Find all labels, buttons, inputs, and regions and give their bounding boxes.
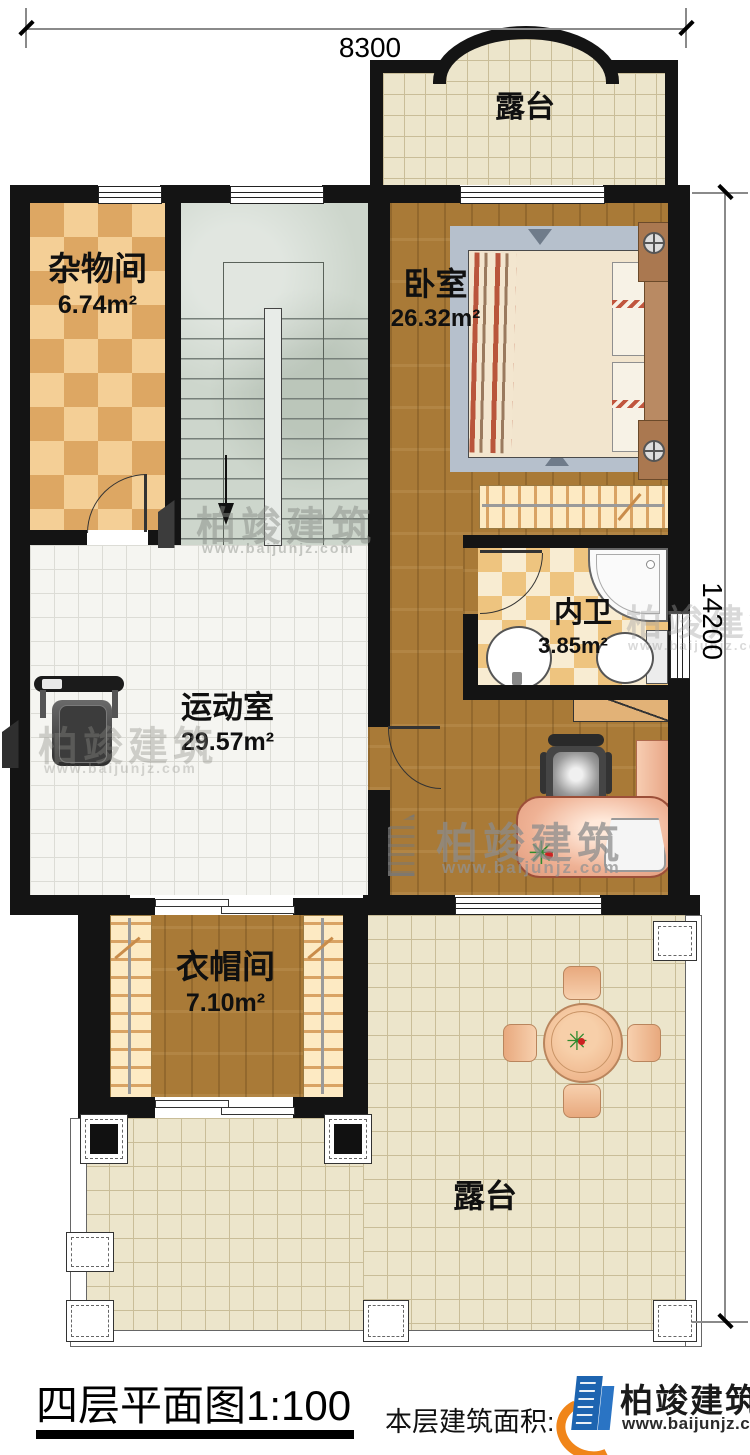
floor-area-note: 本层建筑面积:( [385, 1400, 564, 1439]
cloakroom-sliding-door-top-b [221, 906, 295, 914]
bedroom-terrace-window [460, 186, 605, 204]
top-wall-seg2 [160, 185, 230, 203]
cloakroom-sliding-door-bottom-a [155, 1100, 229, 1108]
column-dash [658, 926, 692, 956]
column-open-topright [653, 921, 697, 961]
column-open-bottomleft [66, 1300, 114, 1342]
storage-door-leaf [144, 474, 147, 532]
cloakroom-right-wall [343, 915, 368, 1118]
hall-door-gap-floor [463, 548, 478, 614]
column-dash [368, 1305, 404, 1337]
gym-right-wall-upper [368, 545, 390, 727]
treadmill-display [42, 679, 62, 689]
top-wall-seg1 [10, 185, 98, 203]
study-bottom-wall-right [600, 895, 700, 915]
gym-door-leaf [388, 726, 440, 729]
side-cabinet [636, 740, 670, 804]
wardrobe-rail [482, 504, 664, 507]
storage-area: 6.74m² [30, 292, 165, 319]
watermark-gym: 柏竣建筑 www.baijunjz.com [2, 714, 262, 784]
column-open-bottommid [363, 1300, 409, 1342]
dim-top-value: 8300 [320, 32, 420, 64]
bed-pillow-trim-top [612, 300, 644, 308]
office-chair-back [548, 734, 604, 746]
terrace-top-wall-topright [606, 60, 678, 73]
watermark-building-icon [2, 720, 32, 768]
watermark-url: www.baijunjz.com [202, 540, 355, 556]
study-bottom-wall-left [363, 895, 455, 915]
column-dash [71, 1305, 109, 1337]
watermark-stairs: 柏竣建筑 www.baijunjz.com [158, 492, 398, 562]
bed-ornament-icon-top [643, 232, 665, 254]
column-solid-right [324, 1114, 372, 1164]
cloakroom-label: 衣帽间 [163, 950, 288, 985]
cloakroom-left-wall [78, 905, 110, 1118]
dim-right-line [724, 192, 726, 1322]
column-dash [71, 1237, 109, 1267]
shower-drain-icon [646, 560, 655, 569]
cloakroom-sliding-door-top-a [155, 899, 229, 907]
watermark-bathroom: 柏竣建筑 www.baijunjz.com [626, 594, 750, 664]
dim-right-ext-top [692, 192, 748, 194]
hall-floor [390, 535, 463, 695]
column-open-bottomright [653, 1300, 697, 1342]
watermark-building-icon [388, 814, 432, 876]
dim-right-ext-bottom [692, 1321, 748, 1323]
cloakroom-area: 7.10m² [163, 990, 288, 1017]
bedroom-label: 卧室 [378, 268, 493, 302]
storage-right-wall [165, 203, 181, 530]
patio-chair-top [563, 966, 601, 1000]
patio-chair-left [503, 1024, 537, 1062]
bathroom-label: 内卫 [538, 598, 628, 629]
floor-plan-canvas: ✳ [0, 0, 750, 1455]
watermark-url: www.baijunjz.com [44, 760, 197, 776]
top-wall-seg4 [603, 185, 690, 203]
patio-chair-right [627, 1024, 661, 1062]
cloakroom-top-wall-left [110, 898, 155, 915]
watermark-building-icon [158, 500, 188, 548]
left-exterior-wall [10, 203, 30, 915]
study-door-gap-floor [368, 727, 390, 790]
terrace-top-wall-left [370, 60, 383, 188]
wardrobe-rack [479, 485, 669, 529]
brand-logo-icon [556, 1372, 618, 1446]
terrace-top-floor [383, 73, 665, 185]
storage-window [98, 186, 162, 204]
terrace-top-arch [433, 26, 619, 84]
column-open-leftmid [66, 1232, 114, 1272]
storage-bottom-wall-left [10, 530, 87, 545]
brand-url: www.baijunjz.com [622, 1414, 750, 1434]
watermark-url: www.baijunjz.com [628, 638, 750, 653]
plan-title-underline [36, 1430, 354, 1439]
terrace-bottom-floor-right [363, 915, 685, 1330]
terrace-railing-right [685, 915, 702, 1347]
patio-chair-bottom [563, 1084, 601, 1118]
top-wall-seg3 [322, 185, 460, 203]
study-terrace-window [455, 897, 602, 915]
watermark-url: www.baijunjz.com [442, 858, 621, 878]
column-fill [334, 1124, 362, 1154]
dim-right-value: 14200 [696, 571, 728, 671]
bed-pillow-trim-bottom [612, 400, 644, 408]
office-chair-cushion [553, 752, 599, 802]
column-solid-left [80, 1114, 128, 1164]
terrace-bottom-label: 露台 [420, 1180, 550, 1214]
patio-plant-berry [578, 1038, 585, 1045]
column-dash [658, 1305, 692, 1337]
cloakroom-top-wall-right [293, 898, 368, 915]
bathroom-left-wall [463, 614, 478, 685]
watermark-desk: 柏竣建筑 www.baijunjz.com [388, 810, 668, 882]
stairs-window [230, 186, 324, 204]
bedroom-bottom-wall [463, 535, 690, 548]
plan-title: 四层平面图1:100 [36, 1372, 351, 1433]
terrace-top-wall-right [665, 60, 678, 188]
bathroom-bottom-wall [463, 685, 690, 700]
dim-top-line [25, 28, 687, 30]
column-fill [90, 1124, 118, 1154]
brand-logo: 柏竣建筑 www.baijunjz.com [552, 1368, 750, 1448]
cloakroom-sliding-door-bottom-b [221, 1107, 295, 1115]
storage-label: 杂物间 [30, 252, 165, 287]
bedroom-area: 26.32m² [378, 306, 493, 331]
bathroom-door-leaf [480, 550, 542, 553]
right-exterior-wall [668, 203, 690, 915]
terrace-top-label: 露台 [455, 92, 595, 124]
bathroom-area: 3.85m² [528, 634, 618, 657]
sink-faucet-icon [512, 672, 522, 685]
bed-ornament-icon-bottom [643, 440, 665, 462]
